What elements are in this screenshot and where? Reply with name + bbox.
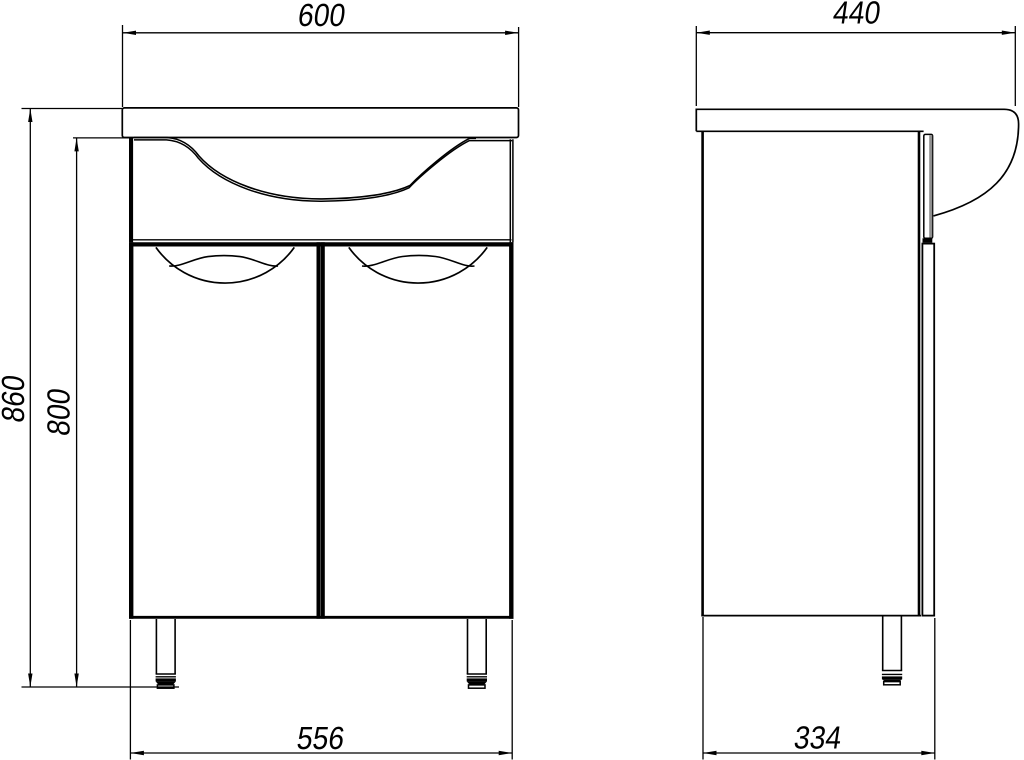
- svg-text:600: 600: [296, 0, 348, 33]
- svg-text:860: 860: [0, 373, 32, 425]
- svg-text:556: 556: [295, 721, 347, 756]
- svg-text:800: 800: [42, 386, 77, 438]
- svg-text:440: 440: [831, 0, 883, 31]
- svg-text:334: 334: [792, 721, 844, 756]
